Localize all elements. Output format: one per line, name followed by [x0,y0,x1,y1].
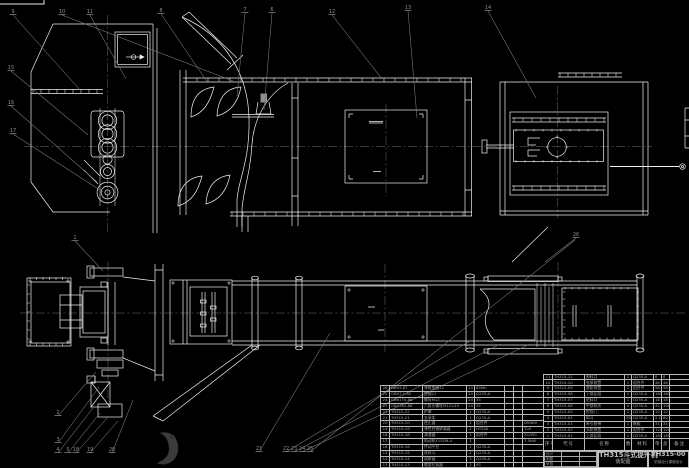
signature-block: 设计制图审核 [543,450,598,468]
balloon-number: 3 [56,437,59,443]
balloon-number: 23 [291,446,297,452]
leader-line [488,11,536,98]
ink-blot-watermark-dot [169,435,175,439]
bom-cell: 185 [654,433,662,439]
balloon-number: 14 [485,5,491,11]
leader-line [13,15,80,90]
bolt-tick-marks [28,73,640,348]
balloon-number: 25 [307,446,313,452]
balloon-number: 10 [59,9,65,15]
leader-line [90,15,126,79]
balloon-number: 16 [8,100,14,106]
balloon-number: 20 [109,447,115,453]
drawing-number-block: TH315-00 机械设计课程设计 [648,450,689,468]
bom-table-left: 26GB93-87弹簧垫圈122465Mn25GB97.1-85垫圈1224Q2… [380,385,544,468]
balloon-number: 15 [8,65,14,71]
balloon-number: 24 [299,446,305,452]
signature-field [562,462,579,467]
balloon-number: 12 [329,9,335,15]
balloon-number: 22 [283,446,289,452]
balloon-number: 7 [243,7,246,13]
drawing-title: TH315斗式提升机 [599,451,647,459]
drawing-number: TH315-00 [649,451,688,460]
bom-cell: 120 [654,427,662,433]
centerlines [20,15,686,398]
balloon-number: 13 [405,5,411,11]
balloon-number: 18 [73,447,79,453]
bom-cell: 2.1 [654,415,662,421]
signature-label: 审核 [545,462,562,467]
leader-line [161,14,208,83]
leader-line [332,15,382,79]
leader-line [264,13,272,110]
leader-line [259,333,330,452]
bom-cell: 185 [662,433,670,439]
balloon-number: 21 [256,446,262,452]
drawing-subtitle: 装配图 [599,459,647,465]
bom-cell: 120 [662,427,670,433]
title-block: TH315斗式提升机 装配图 [598,450,648,468]
org-line: 机械设计课程设计 [649,460,688,465]
cad-sheet: 9101187612131415161712345181920212223242… [0,0,689,468]
sheet-border-corner [0,0,44,4]
signature-field [579,462,596,467]
leader-line [75,241,103,271]
balloon-number: 6 [270,7,273,13]
leader-line [11,106,97,182]
leader-line [545,238,576,262]
bom-table-right: 11TH315-11卸料口1Q235-A8810TH315-10张紧装置1组合件… [543,374,689,453]
balloon-number: 8 [159,8,162,14]
leader-line [58,387,99,443]
balloon-number: 11 [87,9,93,15]
bom-cell: 168 [662,403,670,409]
balloon-number: 19 [87,447,93,453]
leader-line [408,11,417,118]
bom-cell: 165 [654,392,662,398]
leader-line [13,134,103,192]
balloon-number: 2 [56,410,59,416]
balloon-number: 4 [56,447,59,453]
leader-line [62,15,233,81]
balloon-number: 1 [73,235,76,241]
balloon-number: 17 [10,128,16,134]
bom-cell: 165 [662,392,670,398]
balloon-number: 5 [66,447,69,453]
leader-line [112,400,133,453]
leader-line [11,71,88,135]
leader-line [58,372,96,416]
bom-cell: 38 [625,415,632,421]
leader-line [237,13,245,96]
upper-view-side-elevation [31,12,689,262]
balloon-number: 26 [573,232,579,238]
balloon-number: 9 [11,9,14,15]
